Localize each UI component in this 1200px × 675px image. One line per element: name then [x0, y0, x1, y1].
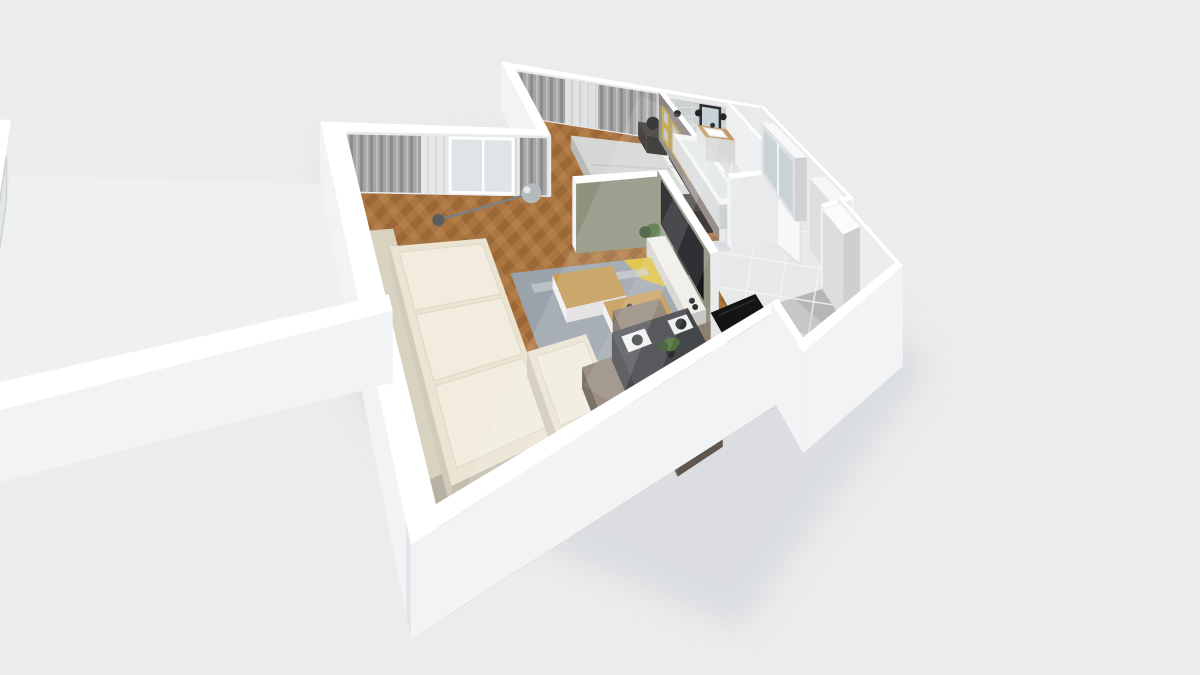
faucet [710, 123, 715, 128]
hall-wardrobe-front-face [795, 157, 807, 221]
console-speaker [692, 304, 698, 310]
bedroom-sheer-curtain [565, 79, 598, 129]
floor-lamp-shade [521, 183, 541, 203]
floorplan-scene [0, 0, 1200, 675]
floor-lamp-highlight [524, 186, 531, 193]
apartment-3d-floorplan [0, 0, 1200, 675]
back-wall-side [501, 61, 504, 115]
wall-sconce [720, 113, 727, 120]
floor-lamp-base [432, 214, 444, 226]
living-window-wall-side [320, 121, 322, 192]
balcony-door-glass [450, 138, 513, 194]
kitchen-front-wall-side [797, 343, 804, 454]
wall-sconce [695, 110, 702, 117]
